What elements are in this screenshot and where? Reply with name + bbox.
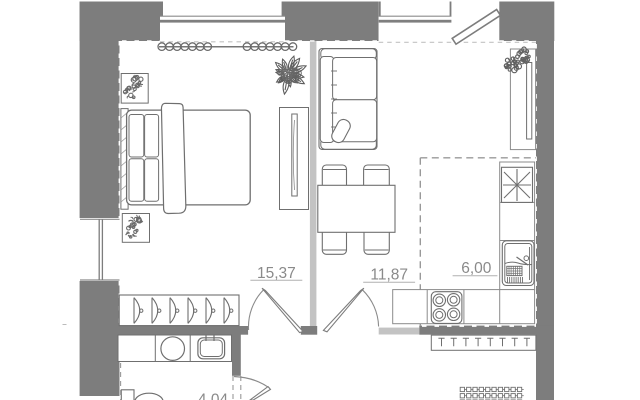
svg-text:11,87: 11,87 <box>370 267 408 284</box>
svg-text:6,00: 6,00 <box>461 260 492 277</box>
svg-text:4,04: 4,04 <box>198 392 229 400</box>
svg-text:15,37: 15,37 <box>257 265 296 282</box>
